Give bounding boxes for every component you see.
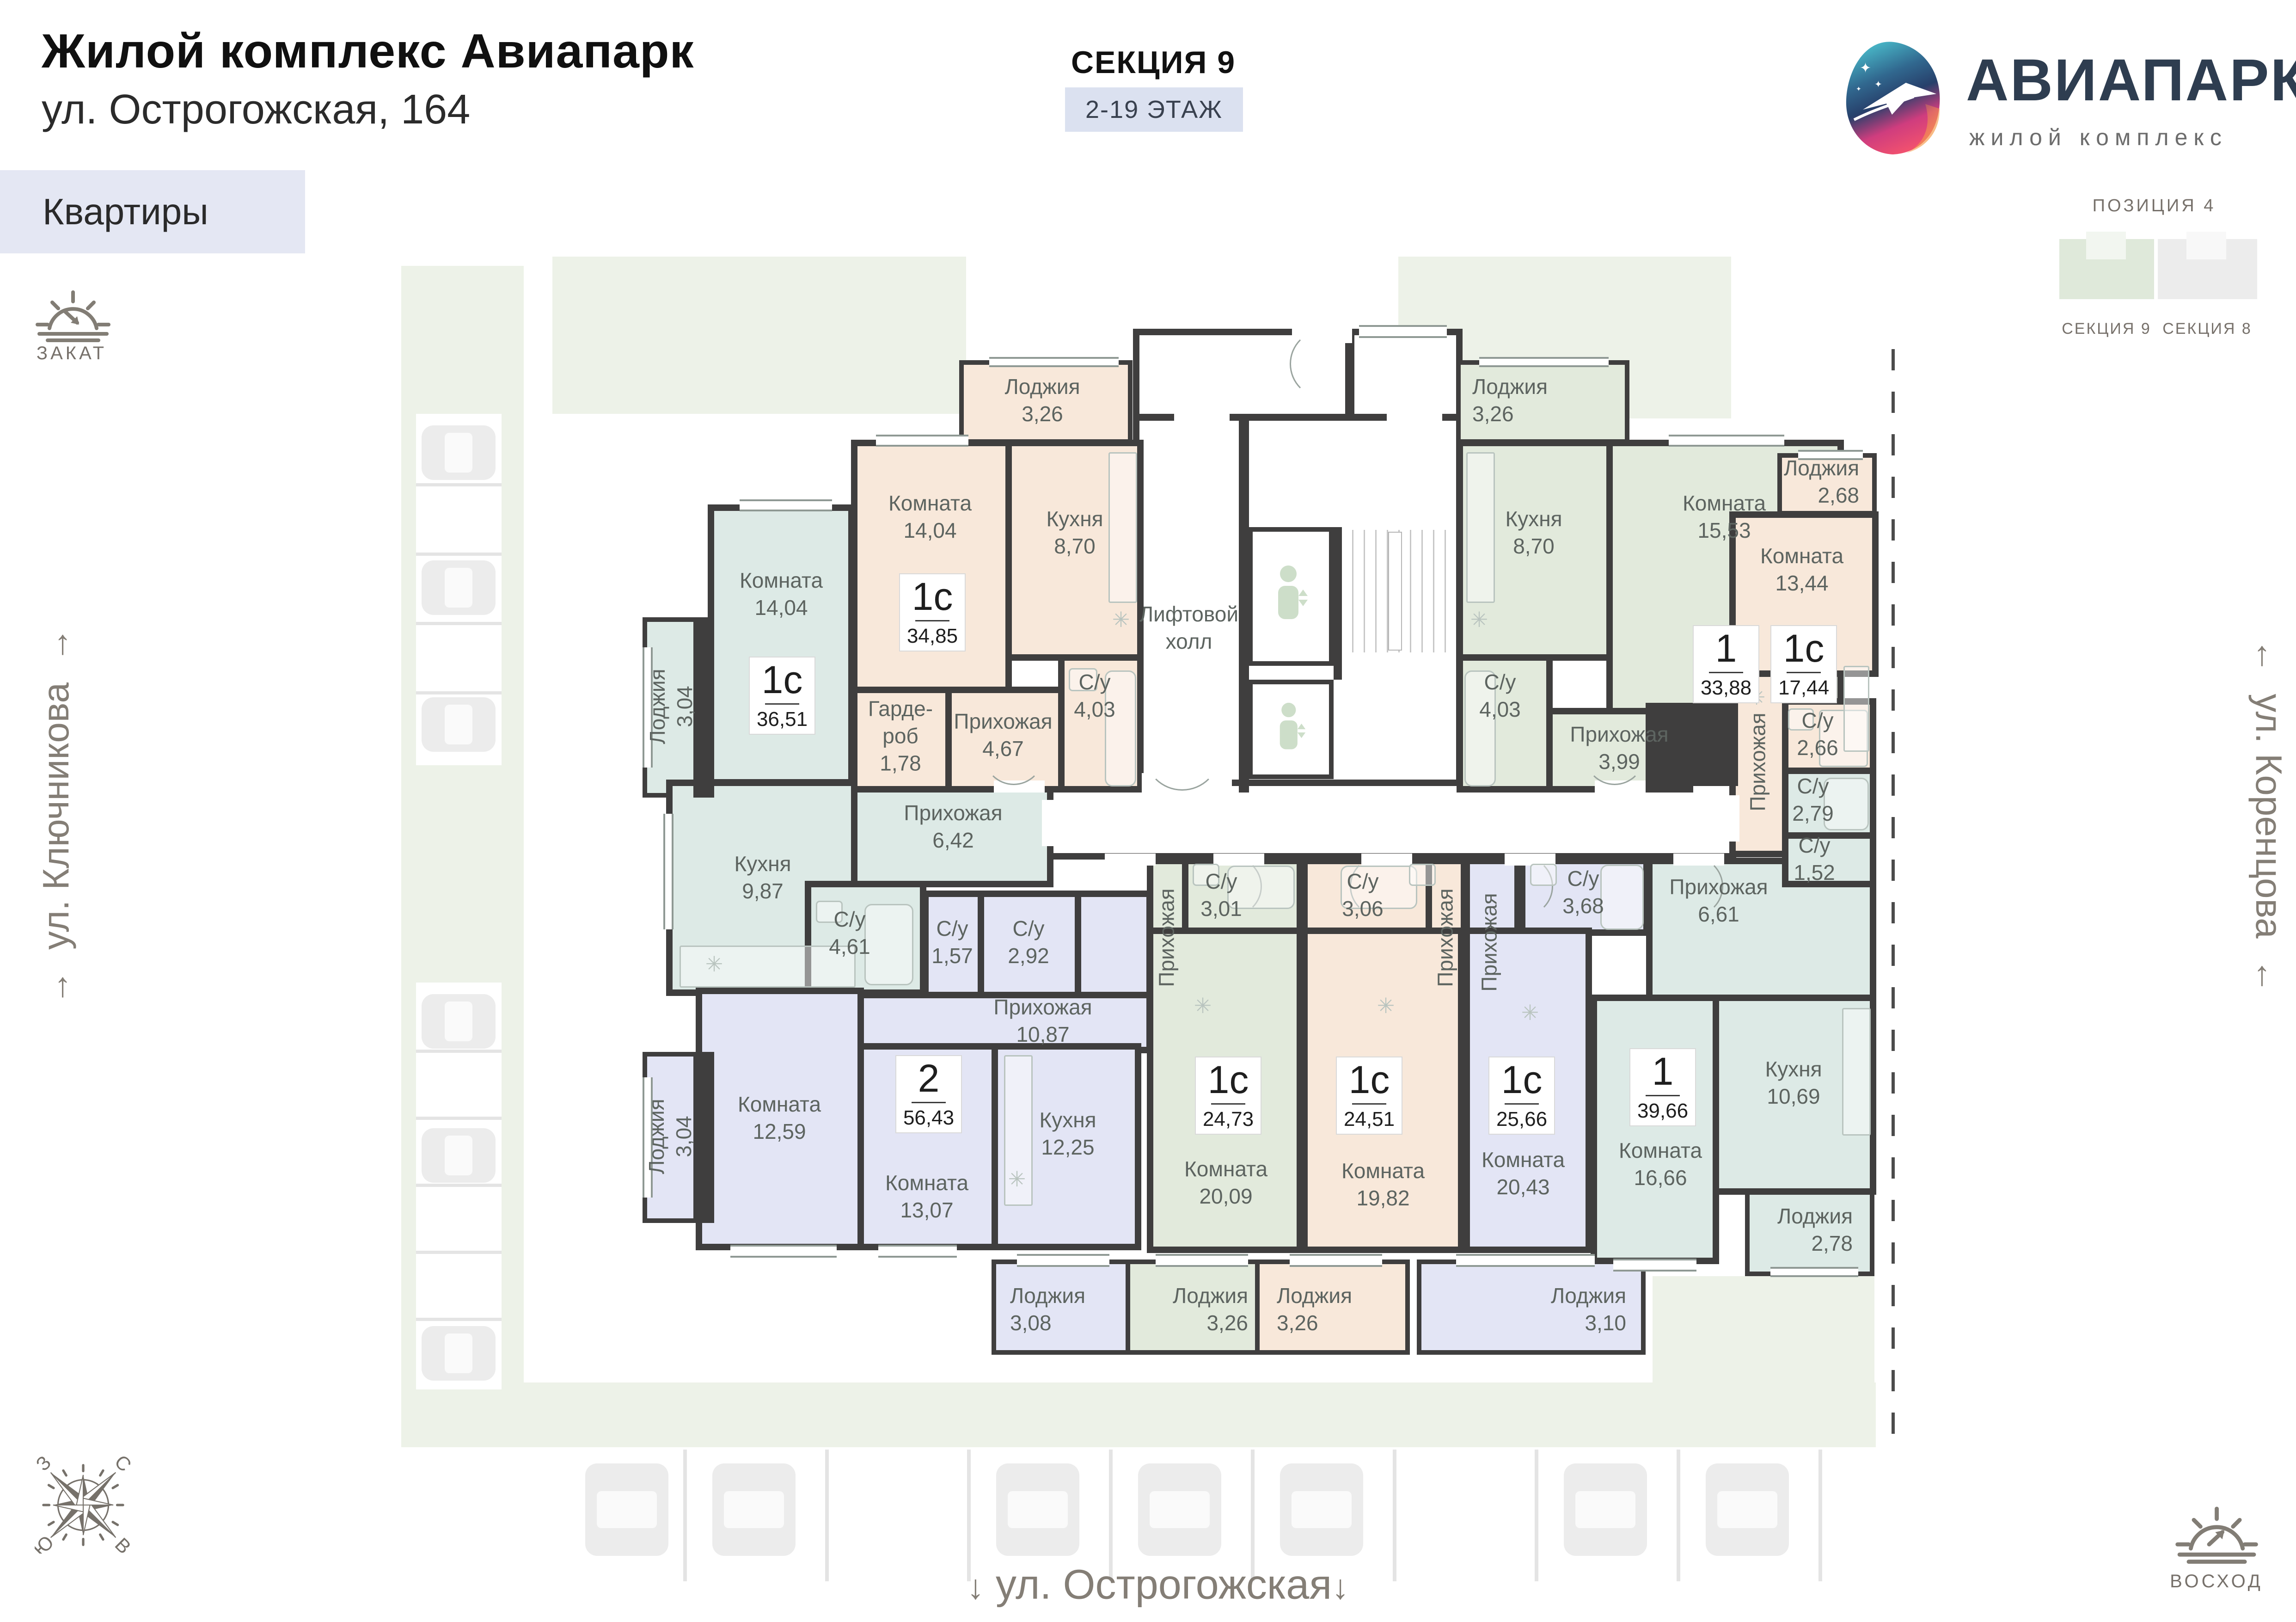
apartment-badge-24-51[interactable]: 1с24,51 xyxy=(1336,1057,1402,1135)
room-label: Лоджия2,78 xyxy=(1777,1203,1853,1257)
door-opening xyxy=(1042,800,1059,846)
room-label: С/у4,61 xyxy=(829,906,870,960)
room-label: Лоджия3,08 xyxy=(1010,1282,1085,1337)
room-label: Комната20,09 xyxy=(1184,1155,1267,1210)
section9-notch xyxy=(2086,232,2126,259)
apartment-39-66-room xyxy=(1591,995,1719,1264)
star-icon: ✦ xyxy=(1874,80,1882,90)
room-label: Прихожая xyxy=(1745,713,1772,811)
compass-north-label: С xyxy=(110,1456,132,1476)
room-label: Комната14,04 xyxy=(740,567,823,621)
window xyxy=(663,814,673,929)
landscape-bottom-right xyxy=(1653,1276,1874,1447)
car-icon xyxy=(422,994,496,1049)
floors-badge: 2-19 ЭТАЖ xyxy=(1065,87,1243,132)
logo-name: АВИАПАРК xyxy=(1966,46,2296,114)
room-label: Комната15,53 xyxy=(1683,490,1766,544)
section-boundary-line xyxy=(1892,349,1895,1454)
room-label: Комната14,04 xyxy=(888,490,972,544)
parking-divider xyxy=(1535,1450,1538,1581)
window xyxy=(740,499,832,511)
arrow-up-icon: → xyxy=(37,970,76,1004)
room-label: Лоджия3,26 xyxy=(1005,373,1080,428)
room-label: Комната13,44 xyxy=(1760,542,1843,597)
bathtub-icon xyxy=(864,904,913,985)
sink-icon xyxy=(1530,864,1557,886)
apartments-tab-label: Квартиры xyxy=(43,190,208,233)
room-label: Прихожая4,67 xyxy=(954,708,1052,762)
position-map-label-9: СЕКЦИЯ 9 xyxy=(2056,320,2157,338)
room-label: Комната19,82 xyxy=(1341,1157,1425,1212)
elevator xyxy=(1248,680,1334,779)
vent-icon: ✳ xyxy=(1470,607,1488,632)
window xyxy=(1456,1254,1595,1267)
room-label: Прихожая xyxy=(1432,888,1459,987)
window xyxy=(1290,1254,1382,1267)
window xyxy=(1613,1259,1696,1272)
window xyxy=(1017,1254,1109,1267)
apartment-badge-24-73[interactable]: 1с24,73 xyxy=(1195,1057,1261,1135)
section-title: СЕКЦИЯ 9 xyxy=(1015,44,1292,80)
room-label: Прихожая xyxy=(1476,893,1503,991)
compass-west-label: З xyxy=(35,1456,55,1475)
window xyxy=(989,357,1119,367)
room-label: Лоджия3,26 xyxy=(1277,1282,1352,1337)
room-label: С/у2,92 xyxy=(1008,915,1049,970)
arrow-up-icon: ← xyxy=(2249,639,2287,673)
street-label-bottom: ↓ ул. Острогожская↓ xyxy=(967,1561,1349,1609)
wall xyxy=(1239,414,1249,793)
arrow-up-icon: ← xyxy=(2249,959,2287,993)
room-label: Прихожая xyxy=(1153,888,1181,987)
parking-divider xyxy=(416,1251,502,1254)
apartments-tab[interactable]: Квартиры xyxy=(0,170,305,253)
apartment-badge-17-44[interactable]: 1с17,44 xyxy=(1770,625,1837,703)
street-label-right: ← ул. Коренцова ← xyxy=(2247,639,2290,993)
window xyxy=(1669,435,1784,447)
car-icon xyxy=(422,1128,496,1183)
car-icon xyxy=(712,1463,796,1556)
room-label: Лоджия3,26 xyxy=(1472,373,1548,428)
arrow-down-icon: ↓ xyxy=(1332,1568,1349,1606)
staircase-rail xyxy=(1388,532,1402,651)
arrow-up-icon: → xyxy=(37,628,76,662)
room-label: Комната20,43 xyxy=(1482,1146,1565,1201)
room-label: Комната16,66 xyxy=(1619,1137,1702,1192)
arrow-down-icon: ↓ xyxy=(967,1568,984,1606)
room-label: Лоджия3,04 xyxy=(644,669,698,744)
compass-icon: С З Ю В xyxy=(35,1456,132,1556)
vent-icon: ✳ xyxy=(1194,993,1212,1018)
door-opening xyxy=(1174,413,1230,429)
star-icon: ✦ xyxy=(1860,61,1871,76)
vent-icon: ✳ xyxy=(1008,1167,1026,1192)
sunset-icon xyxy=(35,288,111,344)
door-opening xyxy=(1387,413,1442,429)
section8-notch xyxy=(2186,232,2226,259)
car-icon xyxy=(422,560,496,615)
sunrise-label: ВОСХОД xyxy=(2170,1571,2263,1592)
room-label: С/у2,79 xyxy=(1792,773,1834,827)
elevator xyxy=(1248,527,1334,666)
apartment-badge-39-66[interactable]: 139,66 xyxy=(1629,1048,1696,1126)
star-icon: ✦ xyxy=(1856,85,1861,92)
car-icon xyxy=(996,1463,1079,1556)
apartment-36-51-room xyxy=(708,504,855,786)
position-map-label-8: СЕКЦИЯ 8 xyxy=(2156,320,2258,338)
room-label: Прихожая6,42 xyxy=(904,799,1002,854)
car-icon xyxy=(422,697,496,752)
room-label: Прихожая6,61 xyxy=(1669,873,1768,928)
parking-divider xyxy=(416,691,502,694)
page-address: ул. Острогожская, 164 xyxy=(42,86,470,134)
parking-divider xyxy=(416,553,502,556)
room-label: Лоджия2,68 xyxy=(1784,455,1859,509)
room-label: Кухня12,25 xyxy=(1039,1106,1096,1161)
bathtub-icon xyxy=(1600,865,1644,930)
door-arc xyxy=(1144,714,1220,791)
room-label: С/у3,68 xyxy=(1562,865,1604,920)
logo-subtitle: жилой комплекс xyxy=(1969,124,2228,151)
car-icon xyxy=(1280,1463,1363,1556)
room-label: Лоджия3,26 xyxy=(1173,1282,1248,1337)
parking-divider xyxy=(416,1318,502,1321)
room-label: Лоджия3,04 xyxy=(643,1099,698,1174)
lift-hall-label: Лифтовойхолл xyxy=(1139,601,1238,655)
door-opening xyxy=(1105,854,1156,866)
apartment-34-85-room xyxy=(851,440,1012,693)
door-arc xyxy=(1290,329,1359,399)
parking-divider xyxy=(683,1450,687,1581)
window xyxy=(1479,357,1609,367)
kitchen-counter xyxy=(1466,452,1495,603)
parking-divider xyxy=(416,1184,502,1187)
room-label: Комната12,59 xyxy=(738,1091,821,1145)
parking-divider xyxy=(416,1117,502,1120)
room-label: Лоджия3,10 xyxy=(1551,1282,1626,1337)
door-opening xyxy=(1727,795,1739,842)
room-label: Кухня10,69 xyxy=(1765,1056,1822,1110)
parking-divider xyxy=(416,622,502,625)
elevator-person-icon xyxy=(1273,562,1310,631)
car-icon xyxy=(585,1463,668,1556)
room-label: С/у2,66 xyxy=(1797,707,1838,762)
parking-divider xyxy=(1677,1450,1680,1581)
window xyxy=(1156,1254,1248,1267)
room-label: Гарде-роб1,78 xyxy=(868,695,933,777)
elevator-person-icon xyxy=(1275,700,1307,760)
sunset-label: ЗАКАТ xyxy=(37,343,107,364)
window xyxy=(1359,325,1447,338)
kitchen-counter xyxy=(1108,452,1137,603)
apartment-badge-56-43[interactable]: 256,43 xyxy=(895,1055,962,1133)
logo[interactable]: ✦ ✦ ✦ xyxy=(1837,39,1953,160)
vent-icon: ✳ xyxy=(705,952,723,977)
vent-icon: ✳ xyxy=(1521,1000,1539,1025)
sunrise-icon xyxy=(2173,1504,2260,1566)
wall xyxy=(1334,527,1342,680)
room-label: С/у4,03 xyxy=(1479,669,1521,723)
parking-divider xyxy=(1393,1450,1396,1581)
car-icon xyxy=(1138,1463,1221,1556)
compass-east-label: В xyxy=(111,1534,132,1554)
vent-icon: ✳ xyxy=(1377,993,1395,1018)
car-icon xyxy=(422,425,496,480)
room-label: Кухня8,70 xyxy=(1505,505,1562,560)
street-label-left: → ул. Ключникова → xyxy=(35,628,77,1005)
logo-blob-icon: ✦ ✦ ✦ xyxy=(1837,39,1953,157)
room-label: С/у1,52 xyxy=(1794,832,1835,886)
parking-divider xyxy=(416,1050,502,1053)
page-title: Жилой комплекс Авиапарк xyxy=(42,24,694,79)
parking-divider xyxy=(1818,1450,1822,1581)
room-label: С/у3,01 xyxy=(1200,868,1242,922)
room-label: Кухня9,87 xyxy=(734,850,791,905)
apartment-badge-25-66[interactable]: 1с25,66 xyxy=(1488,1057,1555,1135)
car-icon xyxy=(1564,1463,1647,1556)
vent-icon: ✳ xyxy=(1112,607,1130,632)
position-map-section9[interactable] xyxy=(2059,229,2154,303)
kitchen-counter xyxy=(1842,1008,1871,1136)
window xyxy=(878,1245,957,1258)
parking-divider xyxy=(825,1450,829,1581)
room-label: С/у4,03 xyxy=(1074,669,1115,723)
window xyxy=(730,1245,837,1258)
room-label: С/у1,57 xyxy=(931,915,973,970)
position-map-section8[interactable] xyxy=(2158,229,2257,303)
apartment-badge-33-88[interactable]: 133,88 xyxy=(1693,625,1759,703)
apartment-badge-34-85[interactable]: 1с34,85 xyxy=(899,573,966,651)
room-label: Прихожая10,87 xyxy=(993,994,1092,1048)
kitchen-counter xyxy=(1843,666,1869,752)
room-label: Кухня8,70 xyxy=(1046,505,1103,560)
room-label: Комната13,07 xyxy=(885,1169,968,1224)
window xyxy=(1770,1267,1858,1277)
sink-icon xyxy=(1409,864,1436,886)
room-label: С/у3,06 xyxy=(1342,868,1384,922)
landscape-top-left xyxy=(552,257,966,414)
room-label: Прихожая3,99 xyxy=(1570,721,1668,775)
car-icon xyxy=(422,1326,496,1381)
parking-divider xyxy=(416,483,502,486)
window xyxy=(876,435,968,447)
position-map-title: ПОЗИЦИЯ 4 xyxy=(2062,196,2247,216)
apartment-badge-36-51[interactable]: 1с36,51 xyxy=(749,657,815,735)
car-icon xyxy=(1706,1463,1789,1556)
